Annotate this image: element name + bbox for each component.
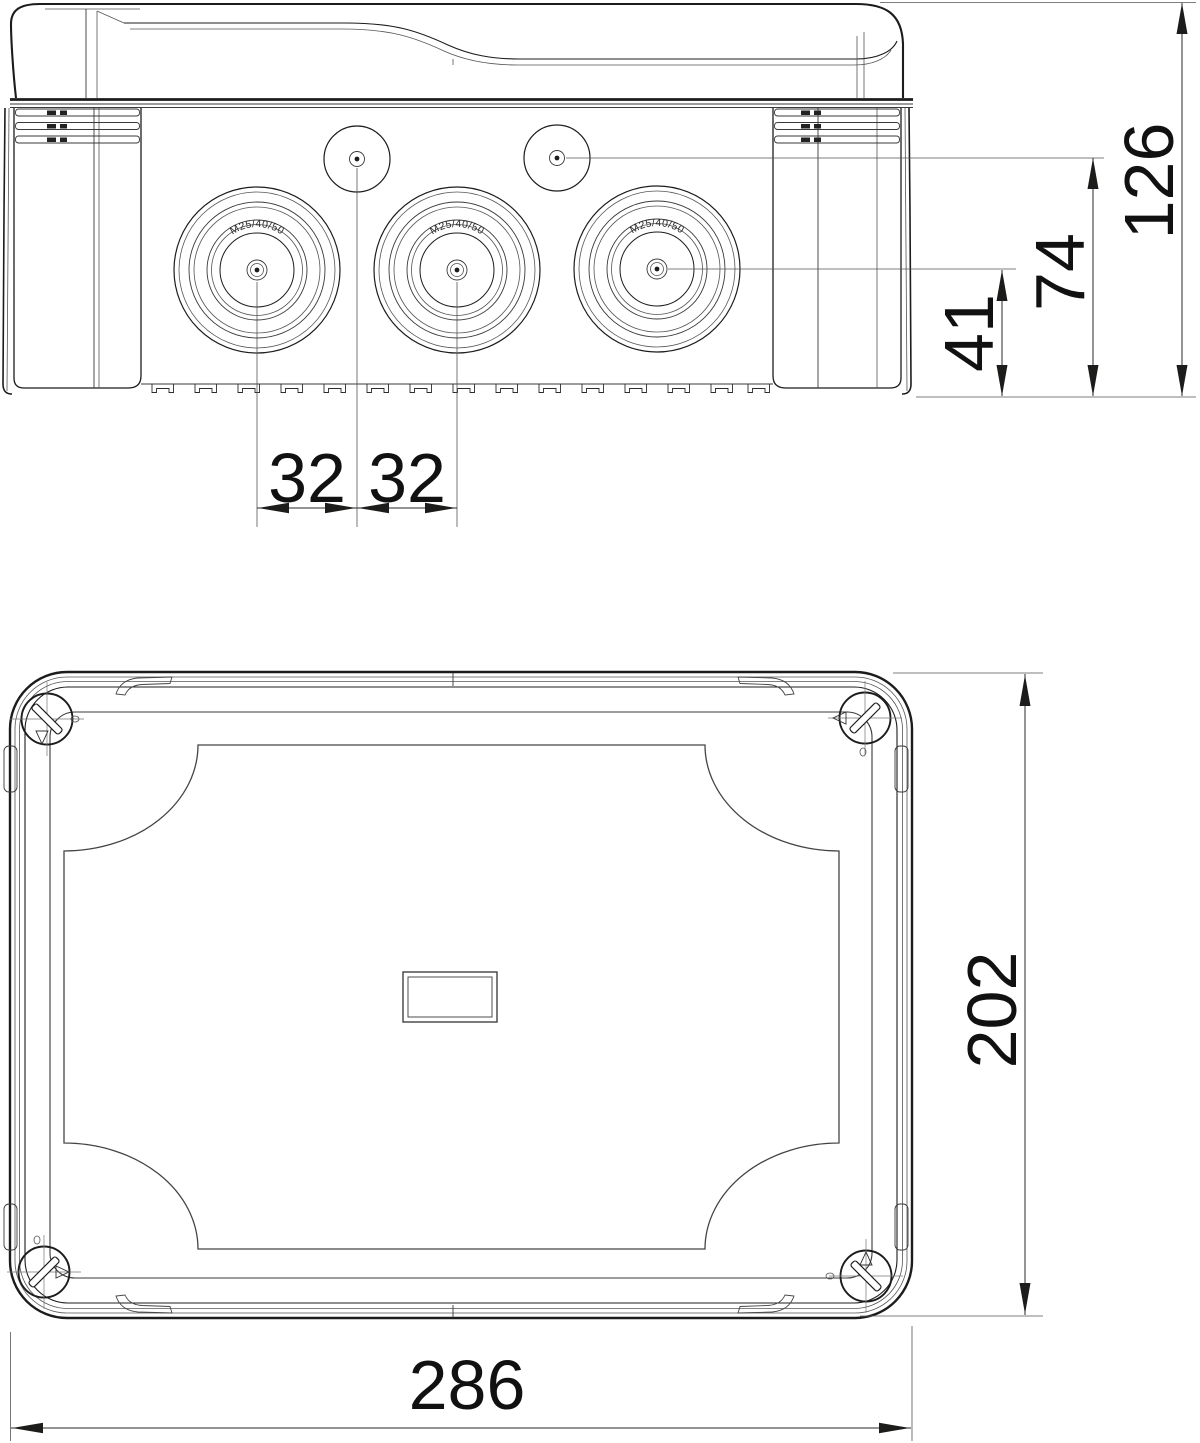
dimension-41: 41 [930,270,1008,396]
dim-74-label: 74 [1021,233,1099,311]
body-left-panel [3,108,141,394]
corner-screw-top-right [828,681,902,755]
knockout-marking-2: M25/40/50 [428,218,486,237]
front-view: M25/40/50 M25/40/50 M25/40/50 32 32 [3,3,1196,528]
label-field [403,972,497,1022]
lid-face-panel [64,745,839,1249]
corner-screw-bottom-right [829,1239,903,1313]
knockout-marking-1: M25/40/50 [228,218,286,237]
dim-spacing-right-label: 32 [368,439,446,517]
edge-clips [4,673,908,1318]
corner-screw-top-left [10,682,84,756]
dim-41-label: 41 [930,294,1008,372]
lid-profile [11,4,903,98]
lid-rim [10,100,913,108]
dimension-126: 126 [1110,3,1188,396]
dim-286-label: 286 [409,1346,526,1424]
knockout-marking-3: M25/40/50 [628,217,686,236]
dimension-202: 202 [860,673,1043,1316]
plan-view: 202 286 [4,672,1043,1441]
plan-outline [10,672,912,1318]
screw-dot-bottom-left [34,1236,40,1244]
dimension-74: 74 [1021,158,1099,396]
dim-202-label: 202 [953,952,1031,1069]
dim-spacing-left-label: 32 [268,439,346,517]
junction-box-drawing: M25/40/50 M25/40/50 M25/40/50 32 32 [0,0,1200,1443]
dimension-286: 286 [11,1326,913,1441]
technical-drawing-sheet: M25/40/50 M25/40/50 M25/40/50 32 32 [0,0,1200,1443]
body-right-panel [773,108,911,394]
dim-126-label: 126 [1110,123,1188,240]
